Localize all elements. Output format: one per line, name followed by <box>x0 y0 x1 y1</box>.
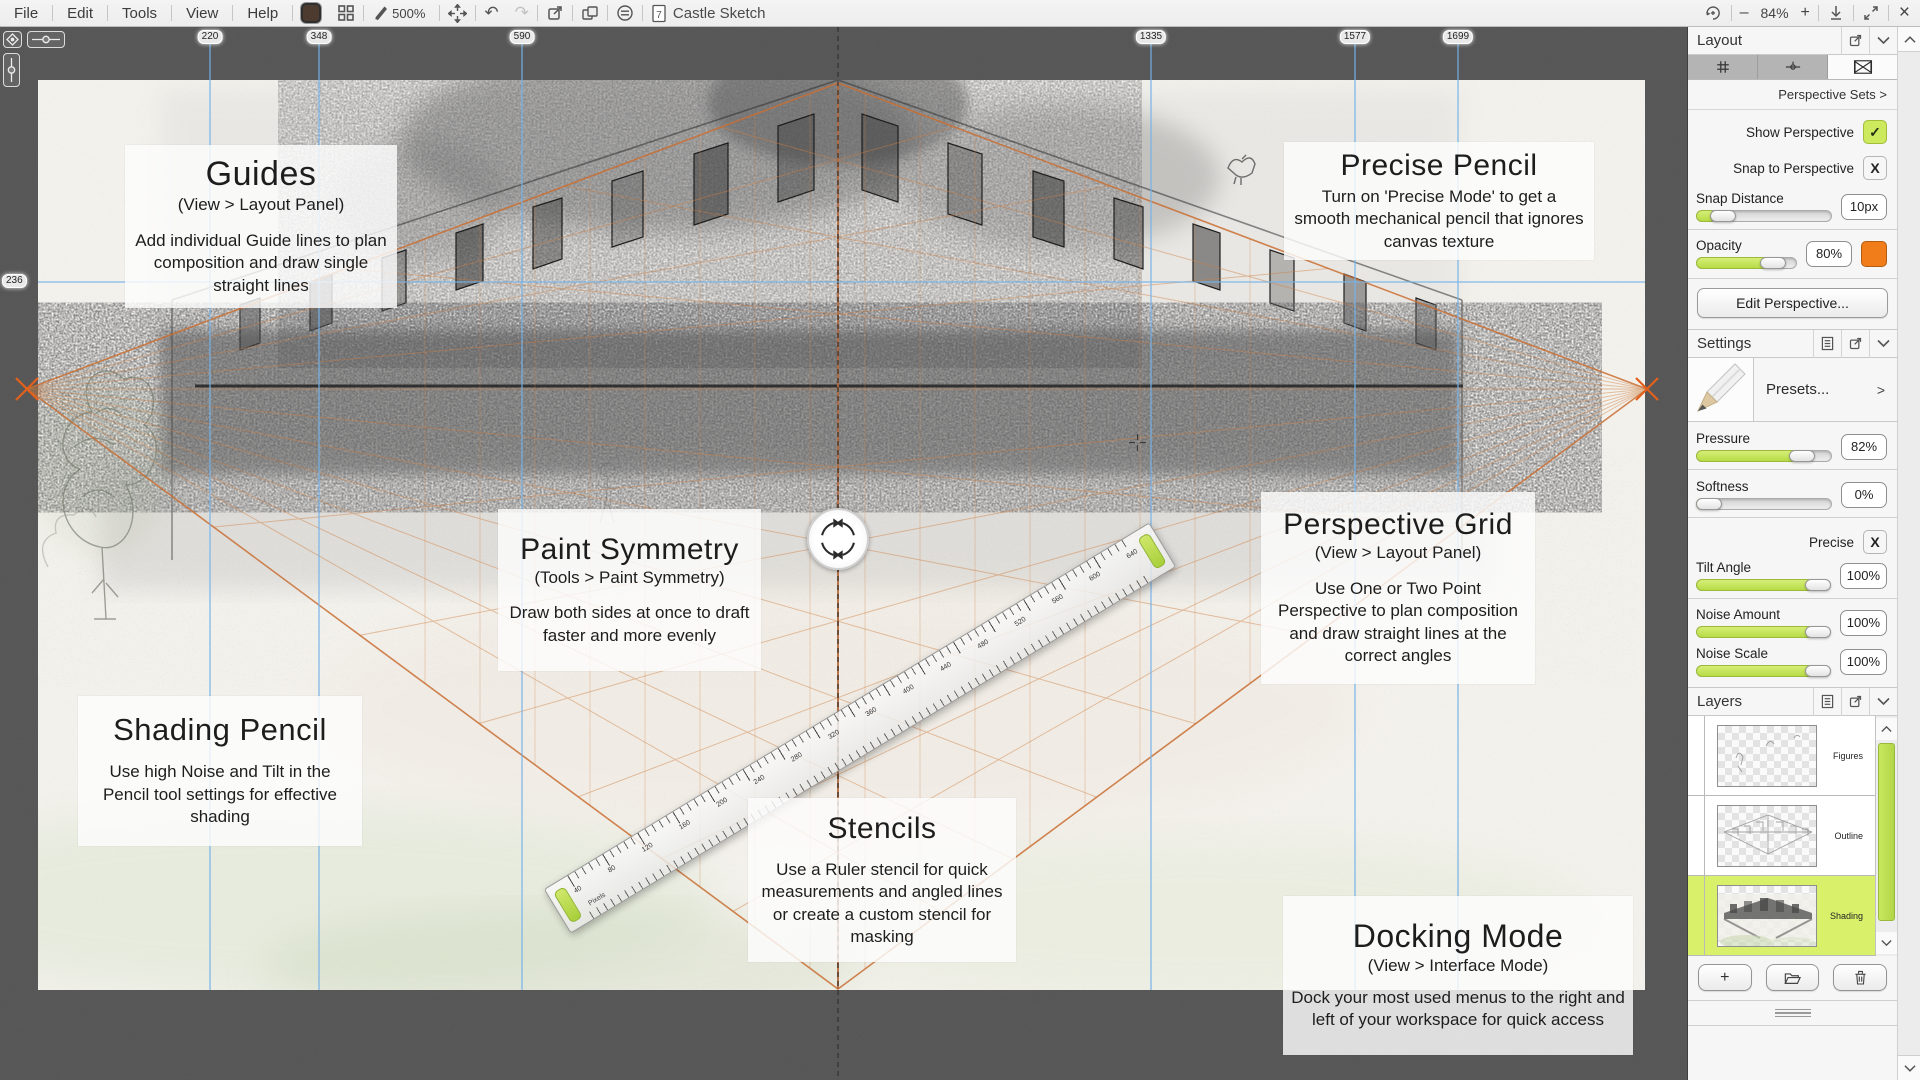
precise-checkbox[interactable]: X <box>1863 530 1887 554</box>
panel-collapse-button[interactable] <box>1869 330 1897 358</box>
guide-label[interactable]: 1577 <box>1340 30 1370 44</box>
menu-bar: File Edit Tools View Help 500% ↶ ↷ 7 Cas… <box>0 0 1920 27</box>
guide-label[interactable]: 220 <box>198 30 223 44</box>
tab-perspective[interactable] <box>1828 55 1897 79</box>
zoom-out-button[interactable]: – <box>1732 4 1757 22</box>
layers-scroll-down-button[interactable] <box>1876 932 1897 954</box>
sidebar-scroll-up-button[interactable] <box>1898 27 1920 52</box>
layer-gutter <box>1688 796 1705 875</box>
callout-title: Stencils <box>827 812 936 845</box>
symmetry-rotate-icon <box>809 510 867 568</box>
layer-group-button[interactable] <box>1766 964 1820 991</box>
callout-body: Use One or Two Point Perspective to plan… <box>1269 578 1527 668</box>
close-button[interactable]: × <box>1889 2 1920 24</box>
opacity-label: Opacity <box>1696 238 1797 253</box>
chevron-up-icon <box>1904 35 1916 44</box>
opacity-slider[interactable] <box>1696 257 1797 269</box>
callout-docking-mode: Docking Mode (View > Interface Mode) Doc… <box>1283 896 1633 1055</box>
pressure-label: Pressure <box>1696 431 1832 446</box>
zoom-level: 84% <box>1757 5 1793 21</box>
vertical-guide-icon <box>5 56 18 84</box>
move-tool-button[interactable] <box>440 0 475 27</box>
guide-label[interactable]: 1699 <box>1443 30 1473 44</box>
noise-amount-label: Noise Amount <box>1696 607 1831 622</box>
callout-body: Draw both sides at once to draft faster … <box>506 602 753 647</box>
panel-collapse-button[interactable] <box>1869 688 1897 716</box>
show-perspective-label: Show Perspective <box>1746 125 1854 140</box>
guide-label[interactable]: 348 <box>307 30 332 44</box>
noise-amount-slider[interactable] <box>1696 626 1831 638</box>
callout-body: Use a Ruler stencil for quick measuremen… <box>756 859 1008 949</box>
pencil-preset-thumbnail[interactable] <box>1688 358 1754 421</box>
snap-distance-slider[interactable] <box>1696 210 1832 222</box>
chevron-down-icon <box>1877 36 1890 45</box>
callout-title: Perspective Grid <box>1283 508 1513 541</box>
list-icon <box>1821 336 1834 351</box>
document-title: Castle Sketch <box>667 5 766 22</box>
softness-value[interactable]: 0% <box>1841 482 1887 508</box>
layer-name: Figures <box>1833 751 1863 761</box>
trash-icon <box>1854 970 1867 985</box>
horizontal-guide-icon <box>30 33 62 46</box>
tilt-angle-label: Tilt Angle <box>1696 560 1831 575</box>
layout-panel-title: Layout <box>1697 32 1742 49</box>
softness-label: Softness <box>1696 479 1832 494</box>
guide-point-icon <box>5 33 20 46</box>
callout-perspective-grid: Perspective Grid (View > Layout Panel) U… <box>1261 492 1535 684</box>
document-icon: 7 <box>651 4 667 23</box>
callout-title: Guides <box>206 156 317 193</box>
panel-export-button[interactable] <box>1841 330 1869 358</box>
reset-rotation-button[interactable] <box>1695 0 1731 27</box>
edit-perspective-button[interactable]: Edit Perspective... <box>1697 288 1888 318</box>
callout-body: Add individual Guide lines to plan compo… <box>133 230 389 297</box>
cursor-crosshair <box>1129 434 1146 451</box>
layers-scroll-up-button[interactable] <box>1876 718 1897 740</box>
presets-row[interactable]: Presets... > <box>1688 358 1897 422</box>
callout-body: Use high Noise and Tilt in the Pencil to… <box>86 761 354 828</box>
sidebar: Layout Perspective Sets > Show Perspecti… <box>1687 27 1920 1080</box>
add-horizontal-guide-button[interactable] <box>27 31 65 48</box>
layer-row-figures[interactable]: Figures <box>1688 716 1897 796</box>
menu-tools[interactable]: Tools <box>108 5 171 22</box>
sidebar-scrollbar[interactable] <box>1897 27 1920 1080</box>
menu-file[interactable]: File <box>0 5 52 22</box>
workspace: 220 348 590 1335 1577 1699 236 408012016… <box>0 27 1687 1080</box>
pen-icon <box>372 4 390 22</box>
settings-panel: Settings Presets... > <box>1688 329 1897 687</box>
callout-shading-pencil: Shading Pencil Use high Noise and Tilt i… <box>78 696 362 846</box>
fullscreen-button[interactable] <box>1854 0 1888 27</box>
color-swatch-button[interactable] <box>293 0 329 27</box>
guide-label[interactable]: 1335 <box>1136 30 1166 44</box>
download-icon <box>1827 4 1845 22</box>
panel-collapse-button[interactable] <box>1869 27 1897 55</box>
layer-gutter <box>1688 716 1705 795</box>
menu-edit[interactable]: Edit <box>53 5 107 22</box>
undo-button[interactable]: ↶ <box>476 0 506 27</box>
layer-name: Outline <box>1834 831 1863 841</box>
callout-title: Paint Symmetry <box>520 533 739 566</box>
panel-export-button[interactable] <box>1841 27 1869 55</box>
panel-resize-handle[interactable] <box>1688 1000 1897 1026</box>
tilt-angle-slider[interactable] <box>1696 579 1831 591</box>
symmetry-widget[interactable] <box>807 508 869 570</box>
sidebar-scroll-down-button[interactable] <box>1898 1055 1920 1080</box>
chevron-down-icon <box>1877 339 1890 348</box>
callout-subtitle: (View > Layout Panel) <box>1315 543 1481 563</box>
noise-scale-slider[interactable] <box>1696 665 1831 677</box>
perspective-sets-link[interactable]: Perspective Sets > <box>1688 80 1897 110</box>
perspective-color-swatch[interactable] <box>1861 241 1887 267</box>
layer-name: Shading <box>1830 911 1863 921</box>
opacity-value[interactable]: 80% <box>1806 241 1852 267</box>
circle-lines-icon <box>616 4 634 22</box>
layers-panel: Layers Figures <box>1688 687 1897 1026</box>
duplicate-button[interactable] <box>573 0 607 27</box>
callout-body: Turn on 'Precise Mode' to get a smooth m… <box>1292 186 1586 253</box>
export-icon <box>546 4 564 22</box>
callout-precise-pencil: Precise Pencil Turn on 'Precise Mode' to… <box>1284 142 1594 260</box>
presets-chevron: > <box>1877 382 1897 398</box>
pressure-value[interactable]: 82% <box>1841 434 1887 460</box>
list-icon <box>1821 694 1834 709</box>
chevron-up-icon <box>1881 725 1892 733</box>
layers-scroll-thumb[interactable] <box>1878 743 1895 921</box>
softness-slider[interactable] <box>1696 498 1832 510</box>
panel-export-button[interactable] <box>1841 688 1869 716</box>
guide-label[interactable]: 590 <box>510 30 535 44</box>
layer-gutter <box>1688 876 1705 955</box>
stabilizer-button[interactable] <box>608 0 642 27</box>
document-button[interactable]: 7 Castle Sketch <box>643 0 774 27</box>
snap-to-perspective-label: Snap to Perspective <box>1733 161 1854 176</box>
guides-icon <box>1784 59 1802 75</box>
redo-icon: ↷ <box>515 3 529 23</box>
grid-icon <box>1715 59 1731 75</box>
precise-label: Precise <box>1809 535 1854 550</box>
callout-body: Dock your most used menus to the right a… <box>1291 987 1625 1032</box>
show-perspective-checkbox[interactable]: ✓ <box>1863 120 1887 144</box>
layers-scrollbar[interactable] <box>1875 716 1897 956</box>
export-icon <box>1848 33 1863 48</box>
pencil-icon <box>1692 363 1750 417</box>
snap-to-perspective-checkbox[interactable]: X <box>1863 156 1887 180</box>
callout-title: Docking Mode <box>1353 919 1564 954</box>
chevron-down-icon <box>1881 939 1892 947</box>
add-layer-button[interactable]: + <box>1698 964 1752 991</box>
settings-panel-title: Settings <box>1697 335 1751 352</box>
layers-list: Figures Outline <box>1688 716 1897 956</box>
svg-text:7: 7 <box>656 10 662 21</box>
layer-thumbnail <box>1717 725 1817 787</box>
add-vertical-guide-button[interactable] <box>3 53 20 87</box>
callout-stencils: Stencils Use a Ruler stencil for quick m… <box>748 798 1016 962</box>
layers-panel-title: Layers <box>1697 693 1742 710</box>
redo-button[interactable]: ↷ <box>507 0 537 27</box>
tab-guides[interactable] <box>1758 55 1828 79</box>
layout-panel: Layout Perspective Sets > Show Perspecti… <box>1688 27 1897 318</box>
noise-scale-label: Noise Scale <box>1696 646 1831 661</box>
zoom-in-button[interactable]: + <box>1793 4 1818 22</box>
tilt-angle-value[interactable]: 100% <box>1840 563 1887 589</box>
callout-title: Shading Pencil <box>113 713 327 747</box>
export-icon <box>1848 336 1863 351</box>
export-button[interactable] <box>538 0 572 27</box>
undo-icon: ↶ <box>484 3 498 23</box>
perspective-icon <box>1853 59 1873 75</box>
noise-scale-value[interactable]: 100% <box>1840 649 1887 675</box>
duplicate-icon <box>581 4 599 22</box>
current-color-swatch <box>301 3 321 23</box>
callout-guides: Guides (View > Layout Panel) Add individ… <box>125 145 397 308</box>
pressure-slider[interactable] <box>1696 450 1832 462</box>
callout-paint-symmetry: Paint Symmetry (Tools > Paint Symmetry) … <box>498 509 761 671</box>
tab-grid[interactable] <box>1688 55 1758 79</box>
snap-distance-label: Snap Distance <box>1696 191 1832 206</box>
fullscreen-icon <box>1862 4 1880 22</box>
menu-view[interactable]: View <box>172 5 232 22</box>
brush-size-button[interactable]: 500% <box>364 0 439 27</box>
presets-label: Presets... <box>1754 381 1877 398</box>
layer-row-shading[interactable]: Shading <box>1688 876 1897 956</box>
panel-presets-button[interactable] <box>1813 330 1841 358</box>
callout-title: Precise Pencil <box>1340 149 1537 182</box>
callout-subtitle: (Tools > Paint Symmetry) <box>534 568 724 588</box>
chevron-down-icon <box>1877 697 1890 706</box>
guide-label[interactable]: 236 <box>2 274 27 288</box>
chevron-down-icon <box>1904 1064 1916 1073</box>
menu-help[interactable]: Help <box>233 5 292 22</box>
download-button[interactable] <box>1819 0 1853 27</box>
snap-distance-value[interactable]: 10px <box>1841 194 1887 220</box>
layer-thumbnail <box>1717 885 1817 947</box>
layer-thumbnail <box>1717 805 1817 867</box>
layout-grid-icon <box>337 4 355 22</box>
noise-amount-value[interactable]: 100% <box>1840 610 1887 636</box>
add-guide-button[interactable] <box>3 31 22 48</box>
delete-layer-button[interactable] <box>1833 964 1887 991</box>
layer-row-outline[interactable]: Outline <box>1688 796 1897 876</box>
callout-subtitle: (View > Interface Mode) <box>1368 956 1549 976</box>
layout-grid-button[interactable] <box>329 0 363 27</box>
brush-zoom-value: 500% <box>390 6 431 21</box>
panel-presets-button[interactable] <box>1813 688 1841 716</box>
move-icon <box>448 4 467 23</box>
folder-icon <box>1784 971 1801 985</box>
reset-rotation-icon <box>1703 3 1723 23</box>
export-icon <box>1848 694 1863 709</box>
callout-subtitle: (View > Layout Panel) <box>178 195 344 215</box>
